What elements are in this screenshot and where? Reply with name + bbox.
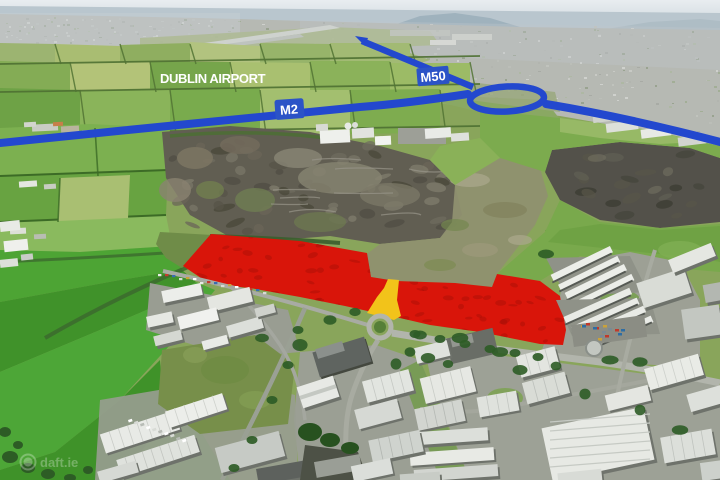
svg-text:DUBLIN AIRPORT: DUBLIN AIRPORT (160, 71, 266, 86)
svg-text:daft.ie: daft.ie (40, 455, 78, 470)
svg-text:M50: M50 (420, 68, 447, 85)
svg-text:M2: M2 (280, 101, 299, 117)
